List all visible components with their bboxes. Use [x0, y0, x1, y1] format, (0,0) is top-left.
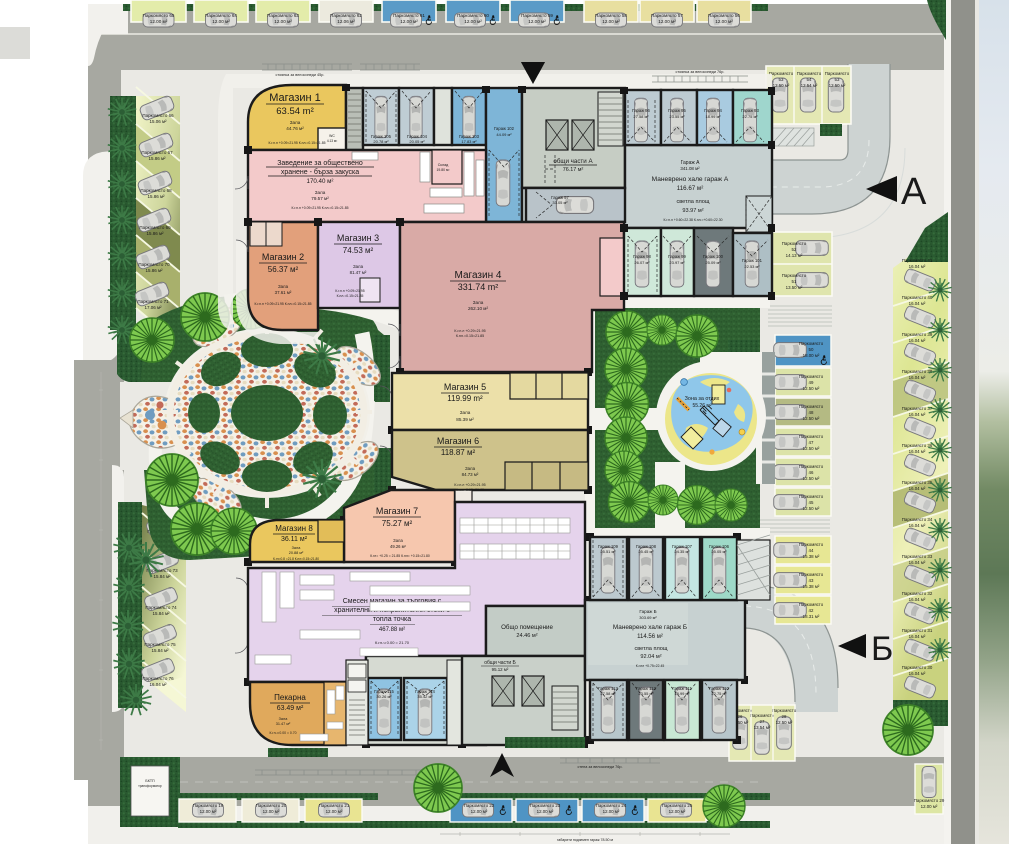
- svg-text:Зала: Зала: [278, 284, 289, 289]
- svg-text:14.13 м²: 14.13 м²: [786, 253, 803, 258]
- svg-text:Магазин 2: Магазин 2: [262, 252, 304, 262]
- svg-text:49.26 м²: 49.26 м²: [390, 544, 407, 549]
- svg-text:Паркомясто 20: Паркомясто 20: [256, 803, 287, 808]
- svg-text:Паркомясто: Паркомясто: [799, 434, 824, 439]
- svg-text:Гараж 100: Гараж 100: [703, 254, 724, 259]
- svg-text:23.55 м²: 23.55 м²: [669, 114, 685, 119]
- svg-text:50: 50: [809, 347, 814, 352]
- svg-text:15.86 м²: 15.86 м²: [148, 156, 166, 161]
- svg-text:54: 54: [807, 77, 812, 82]
- svg-text:Паркомясто 58: Паркомясто 58: [595, 13, 627, 18]
- svg-text:Магазин 7: Магазин 7: [376, 506, 418, 516]
- svg-text:Паркомясто 60: Паркомясто 60: [457, 13, 489, 18]
- svg-text:46: 46: [809, 470, 814, 475]
- svg-text:467.88 м²: 467.88 м²: [379, 627, 405, 633]
- svg-text:К.г.п.л +0.60=22.38 К.пл.=+0.: К.г.п.л +0.60=22.38 К.пл.=+0.60=22.30: [663, 218, 722, 222]
- svg-text:18.00 м²: 18.00 м²: [803, 353, 820, 358]
- svg-text:63.54 m²: 63.54 m²: [276, 106, 314, 117]
- svg-text:Паркомясто 36: Паркомясто 36: [902, 443, 933, 448]
- svg-text:К.гл=0.8 =21.8 К.пл=0.15=21.8: К.гл=0.8 =21.8 К.пл=0.15=21.80: [273, 557, 319, 561]
- svg-text:Паркомясто 35: Паркомясто 35: [902, 480, 933, 485]
- svg-text:12.00 м²: 12.00 м²: [602, 19, 620, 24]
- svg-text:Склад: Склад: [438, 163, 449, 167]
- svg-text:16.04 м²: 16.04 м²: [909, 671, 926, 676]
- svg-text:16.04 м²: 16.04 м²: [909, 523, 926, 528]
- svg-text:20.78 м²: 20.78 м²: [373, 139, 389, 144]
- svg-text:26.07 м²: 26.07 м²: [634, 260, 650, 265]
- svg-text:Паркомясто: Паркомясто: [782, 273, 807, 278]
- svg-text:12.00 м²: 12.00 м²: [326, 809, 343, 814]
- svg-text:17.83 м²: 17.83 м²: [461, 139, 477, 144]
- svg-text:15.84 м²: 15.84 м²: [151, 648, 169, 653]
- svg-text:Паркомясто 71: Паркомясто 71: [137, 299, 169, 304]
- svg-text:БКТП: БКТП: [145, 779, 155, 783]
- svg-text:12.00 м²: 12.00 м²: [528, 19, 546, 24]
- svg-text:12.00 м²: 12.00 м²: [464, 19, 482, 24]
- svg-text:Магазин 8: Магазин 8: [275, 524, 313, 533]
- svg-text:К.пл.=0.15=21.85: К.пл.=0.15=21.85: [337, 294, 364, 298]
- svg-text:Паркомясто 56: Паркомясто 56: [708, 13, 740, 18]
- svg-text:93.97 м²: 93.97 м²: [682, 208, 703, 214]
- svg-text:Гараж 101: Гараж 101: [742, 258, 763, 263]
- svg-text:Паркомясто 39: Паркомясто 39: [902, 332, 933, 337]
- svg-text:Маневрено хале гараж Б: Маневрено хале гараж Б: [613, 624, 687, 631]
- svg-text:22.75 м²: 22.75 м²: [711, 691, 727, 696]
- svg-text:Паркомясто: Паркомясто: [799, 341, 824, 346]
- svg-text:26: 26: [738, 714, 743, 719]
- svg-text:К.г.пл +0.75=22.45: К.г.пл +0.75=22.45: [636, 664, 665, 668]
- svg-text:49: 49: [809, 380, 814, 385]
- svg-text:12.50 м²: 12.50 м²: [803, 476, 820, 481]
- svg-text:К.г.п.н +0.09=21.95 К.пл.=0.1: К.г.п.н +0.09=21.95 К.пл.=0.15=21.85: [255, 302, 312, 306]
- svg-text:Паркомясто 75: Паркомясто 75: [144, 642, 176, 647]
- svg-text:48: 48: [809, 410, 814, 415]
- svg-text:Паркомясто 68: Паркомясто 68: [140, 188, 172, 193]
- svg-text:Зала: Зала: [290, 120, 301, 125]
- svg-text:топла точка: топла точка: [373, 616, 411, 623]
- svg-text:24.35 м²: 24.35 м²: [674, 549, 690, 554]
- svg-text:К.г.п.н +0.09=21.95: К.г.п.н +0.09=21.95: [335, 289, 364, 293]
- svg-text:Паркомясто 65: Паркомясто 65: [143, 13, 175, 18]
- svg-text:12.50 м²: 12.50 м²: [803, 416, 820, 421]
- svg-text:Зала: Зала: [393, 538, 403, 543]
- svg-text:К.г.п.л +0.29=21.95: К.г.п.л +0.29=21.95: [454, 329, 485, 333]
- svg-text:Паркомясто 66: Паркомясто 66: [142, 113, 174, 118]
- svg-text:Паркомясто 31: Паркомясто 31: [902, 628, 933, 633]
- svg-text:Паркомясто 64: Паркомясто 64: [205, 13, 237, 18]
- svg-text:Магазин 1: Магазин 1: [269, 92, 321, 104]
- svg-text:18.99 м²: 18.99 м²: [674, 691, 690, 696]
- svg-text:119.99 m²: 119.99 m²: [447, 394, 483, 403]
- svg-text:35.42 м²: 35.42 м²: [417, 694, 433, 699]
- svg-text:341.08 м²: 341.08 м²: [680, 166, 700, 171]
- svg-text:25.51 м²: 25.51 м²: [600, 549, 616, 554]
- svg-text:81.47 м²: 81.47 м²: [350, 270, 367, 275]
- svg-text:19.80 м²: 19.80 м²: [437, 168, 451, 172]
- svg-text:18.31 м²: 18.31 м²: [803, 614, 820, 619]
- svg-text:Зала: Зала: [473, 300, 484, 305]
- svg-text:15.86 м²: 15.86 м²: [146, 231, 164, 236]
- svg-text:303.69 м²: 303.69 м²: [639, 615, 657, 620]
- svg-text:12.00 м²: 12.00 м²: [212, 19, 230, 24]
- svg-text:Паркомясто 69: Паркомясто 69: [139, 225, 171, 230]
- svg-text:Гараж 93: Гараж 93: [741, 108, 759, 113]
- svg-text:53: 53: [779, 77, 784, 82]
- svg-text:габарити подземен гараж 78.50: габарити подземен гараж 78.50 м: [557, 838, 614, 842]
- svg-text:Паркомясто 76: Паркомясто 76: [142, 676, 174, 681]
- svg-text:16.04 м²: 16.04 м²: [909, 634, 926, 639]
- svg-text:27: 27: [760, 719, 765, 724]
- svg-text:12.00 м²: 12.00 м²: [921, 804, 938, 809]
- svg-text:13.50 м²: 13.50 м²: [786, 285, 803, 290]
- svg-text:Паркомясто: Паркомясто: [799, 602, 824, 607]
- svg-text:К.гл-ч 0.00 = 21.70: К.гл-ч 0.00 = 21.70: [375, 640, 410, 645]
- svg-text:Гараж Б: Гараж Б: [639, 609, 656, 614]
- svg-text:20.05 м²: 20.05 м²: [409, 139, 425, 144]
- svg-text:16.04 м²: 16.04 м²: [909, 412, 926, 417]
- svg-text:Гараж 98: Гараж 98: [633, 254, 651, 259]
- svg-text:95.12 м²: 95.12 м²: [492, 667, 509, 672]
- svg-text:45: 45: [809, 500, 814, 505]
- svg-text:Гараж 95: Гараж 95: [668, 108, 686, 113]
- svg-text:79.57 м²: 79.57 м²: [311, 196, 329, 201]
- svg-text:74.53 м²: 74.53 м²: [343, 246, 374, 255]
- svg-text:16.04 м²: 16.04 м²: [909, 560, 926, 565]
- svg-text:Магазин 6: Магазин 6: [437, 436, 479, 446]
- svg-text:51: 51: [792, 279, 797, 284]
- svg-text:22.53 м²: 22.53 м²: [744, 264, 760, 269]
- svg-text:К.гл-ч 0.00 = 0.70: К.гл-ч 0.00 = 0.70: [270, 731, 297, 735]
- svg-text:16.04 м²: 16.04 м²: [909, 338, 926, 343]
- svg-text:25.05 м²: 25.05 м²: [711, 549, 727, 554]
- svg-text:22.75 м²: 22.75 м²: [742, 114, 758, 119]
- svg-text:Зала: Зала: [279, 717, 289, 721]
- svg-text:Паркомясто: Паркомясто: [799, 542, 824, 547]
- svg-text:К.гл= +0.25 = 21.85 К.пл= +: К.гл= +0.25 = 21.85 К.пл= +0.15=21.80: [370, 554, 430, 558]
- svg-text:Б: Б: [871, 630, 893, 668]
- svg-text:Паркомясто 40: Паркомясто 40: [902, 295, 933, 300]
- svg-text:44: 44: [809, 548, 814, 553]
- svg-text:114.56 м²: 114.56 м²: [637, 634, 663, 640]
- svg-text:Гараж 102: Гараж 102: [494, 126, 515, 131]
- svg-text:15.38 м²: 15.38 м²: [803, 554, 820, 559]
- svg-text:44.09 м²: 44.09 м²: [496, 132, 512, 137]
- svg-text:Паркомясто 73: Паркомясто 73: [146, 568, 178, 573]
- svg-text:Паркомясто: Паркомясто: [799, 404, 824, 409]
- svg-text:Паркомясто: Паркомясто: [782, 241, 807, 246]
- svg-text:Зала: Зала: [353, 264, 364, 269]
- svg-text:118.87 м²: 118.87 м²: [441, 448, 476, 457]
- svg-text:Общо помещение: Общо помещение: [501, 624, 553, 631]
- svg-text:Паркомясто: Паркомясто: [797, 71, 822, 76]
- svg-text:светла площ: светла площ: [634, 646, 667, 652]
- svg-text:43: 43: [809, 578, 814, 583]
- svg-text:Паркомясто 19: Паркомясто 19: [193, 803, 224, 808]
- svg-text:К.г.п.н +0.09=21.95 К.пл.=0.1: К.г.п.н +0.09=21.95 К.пл.=0.15=21.85: [269, 141, 326, 145]
- svg-text:светла площ: светла площ: [676, 199, 709, 205]
- svg-text:Паркомясто 62: Паркомясто 62: [330, 13, 362, 18]
- svg-text:хранене - бърза закуска: хранене - бърза закуска: [281, 168, 359, 176]
- svg-text:стена за велосипеди 76р.: стена за велосипеди 76р.: [577, 765, 622, 769]
- svg-text:75.27 м²: 75.27 м²: [382, 519, 413, 528]
- svg-text:Зона за отдих: Зона за отдих: [685, 396, 720, 402]
- svg-text:Паркомясто: Паркомясто: [799, 464, 824, 469]
- svg-text:55.26 м²: 55.26 м²: [692, 403, 711, 409]
- svg-text:Паркомясто 21: Паркомясто 21: [319, 803, 350, 808]
- svg-text:44.76 м²: 44.76 м²: [286, 126, 304, 131]
- svg-text:15.38 м²: 15.38 м²: [803, 584, 820, 589]
- svg-text:15.84 м²: 15.84 м²: [153, 574, 171, 579]
- svg-text:84.73 м²: 84.73 м²: [462, 472, 479, 477]
- svg-text:Паркомясто 23: Паркомясто 23: [530, 803, 561, 808]
- svg-text:Паркомясто 59: Паркомясто 59: [521, 13, 553, 18]
- svg-text:16.04 м²: 16.04 м²: [909, 301, 926, 306]
- svg-text:Зала: Зала: [315, 190, 326, 195]
- svg-text:стоянка за велосипеди 76р.: стоянка за велосипеди 76р.: [676, 70, 725, 74]
- svg-text:30.26 м²: 30.26 м²: [376, 694, 392, 699]
- svg-text:16.04 м²: 16.04 м²: [909, 449, 926, 454]
- svg-text:116.67 м²: 116.67 м²: [677, 185, 704, 192]
- svg-text:Зала: Зала: [460, 410, 471, 415]
- svg-text:стоянка за велосипеди 45р.: стоянка за велосипеди 45р.: [276, 73, 325, 77]
- svg-text:Паркомясто 33: Паркомясто 33: [902, 554, 933, 559]
- svg-text:Паркомясто: Паркомясто: [825, 71, 850, 76]
- svg-text:12.00 м²: 12.00 м²: [150, 19, 168, 24]
- svg-text:Паркомясто: Паркомясто: [799, 572, 824, 577]
- svg-text:36.11 м²: 36.11 м²: [281, 536, 308, 543]
- svg-text:262.10 м²: 262.10 м²: [468, 306, 488, 311]
- svg-text:63.49 м²: 63.49 м²: [277, 705, 304, 712]
- svg-text:Паркомясто 70: Паркомясто 70: [138, 262, 170, 267]
- svg-text:85.39 м²: 85.39 м²: [456, 417, 474, 422]
- svg-text:42: 42: [809, 608, 814, 613]
- svg-text:12.50 м²: 12.50 м²: [803, 386, 820, 391]
- svg-text:Паркомясто 38: Паркомясто 38: [902, 369, 933, 374]
- svg-text:12.50 м²: 12.50 м²: [803, 446, 820, 451]
- svg-text:Паркомясто 24: Паркомясто 24: [596, 803, 627, 808]
- svg-text:Паркомясто 22: Паркомясто 22: [464, 803, 495, 808]
- svg-text:24.46 м²: 24.46 м²: [516, 633, 537, 639]
- svg-text:К.пл.=0.15=21.85: К.пл.=0.15=21.85: [456, 334, 484, 338]
- svg-text:Паркомясто 63: Паркомясто 63: [267, 13, 299, 18]
- svg-text:Заведение за обществено: Заведение за обществено: [277, 159, 363, 167]
- svg-text:92.04 м²: 92.04 м²: [640, 654, 661, 660]
- svg-text:31.47 м²: 31.47 м²: [276, 722, 291, 726]
- svg-text:16.04 м²: 16.04 м²: [909, 375, 926, 380]
- svg-text:25.09 м²: 25.09 м²: [705, 260, 721, 265]
- svg-text:23.97 м²: 23.97 м²: [669, 260, 685, 265]
- svg-text:15.84 м²: 15.84 м²: [152, 611, 170, 616]
- svg-text:331.74 m²: 331.74 m²: [458, 282, 499, 292]
- svg-text:Паркомясто 74: Паркомясто 74: [145, 605, 177, 610]
- svg-text:15.86 м²: 15.86 м²: [147, 194, 165, 199]
- svg-text:Паркомясто 37: Паркомясто 37: [902, 406, 933, 411]
- svg-text:Паркомясто 57: Паркомясто 57: [651, 13, 683, 18]
- svg-text:Зала: Зала: [465, 466, 476, 471]
- svg-text:76.17 м²: 76.17 м²: [563, 167, 584, 173]
- svg-text:трансформатор: трансформатор: [138, 784, 162, 788]
- svg-text:Паркомясто: Паркомясто: [799, 374, 824, 379]
- svg-text:Магазин 3: Магазин 3: [337, 233, 379, 243]
- svg-text:К.г.п.л +0.29=21.95: К.г.п.л +0.29=21.95: [454, 483, 485, 487]
- svg-text:Гараж 94: Гараж 94: [704, 108, 722, 113]
- svg-text:17.06 м²: 17.06 м²: [144, 305, 162, 310]
- svg-text:Паркомясто 67: Паркомясто 67: [141, 150, 173, 155]
- svg-text:12.00 м²: 12.00 м²: [669, 809, 686, 814]
- svg-text:12.50 м²: 12.50 м²: [803, 506, 820, 511]
- svg-text:Маневрено хале гараж А: Маневрено хале гараж А: [652, 176, 729, 183]
- svg-text:Паркомясто: Паркомясто: [772, 708, 797, 713]
- svg-text:33.05 м²: 33.05 м²: [552, 200, 568, 205]
- svg-text:12.00 м²: 12.00 м²: [400, 19, 418, 24]
- svg-text:47: 47: [809, 440, 814, 445]
- svg-text:Паркомясто: Паркомясто: [769, 71, 794, 76]
- svg-text:53: 53: [835, 77, 840, 82]
- svg-text:12.00 м²: 12.00 м²: [603, 809, 620, 814]
- svg-text:15.06 м²: 15.06 м²: [149, 119, 167, 124]
- svg-text:20.88 м²: 20.88 м²: [289, 551, 304, 555]
- svg-text:Паркомясто 32: Паркомясто 32: [902, 591, 933, 596]
- svg-text:13.54 м²: 13.54 м²: [754, 725, 771, 730]
- svg-text:Паркомясто 61: Паркомясто 61: [393, 13, 425, 18]
- svg-text:56.37 м²: 56.37 м²: [268, 265, 299, 274]
- svg-text:28: 28: [782, 714, 787, 719]
- svg-text:12.00 м²: 12.00 м²: [263, 809, 280, 814]
- svg-text:25.45 м²: 25.45 м²: [638, 549, 654, 554]
- svg-text:16.04 м²: 16.04 м²: [149, 682, 167, 687]
- svg-text:16.04 м²: 16.04 м²: [909, 486, 926, 491]
- svg-text:18.99 м²: 18.99 м²: [705, 114, 721, 119]
- svg-text:16.04 м²: 16.04 м²: [909, 264, 926, 269]
- svg-text:12.00 м²: 12.00 м²: [471, 809, 488, 814]
- svg-text:Паркомясто: Паркомясто: [750, 713, 775, 718]
- svg-text:Паркомясто 41: Паркомясто 41: [902, 258, 933, 263]
- svg-text:37.61 м²: 37.61 м²: [275, 290, 292, 295]
- svg-text:Гараж 96: Гараж 96: [632, 108, 650, 113]
- svg-text:12.00 м²: 12.00 м²: [274, 19, 292, 24]
- svg-text:К.пл.=0.15=21.85: К.пл.=0.15=21.85: [456, 488, 484, 492]
- svg-text:12.50 м²: 12.50 м²: [773, 83, 790, 88]
- svg-text:Паркомясто: Паркомясто: [799, 494, 824, 499]
- svg-text:12.50 м²: 12.50 м²: [776, 720, 793, 725]
- svg-text:12.54 м²: 12.54 м²: [801, 83, 818, 88]
- svg-text:12.00 м²: 12.00 м²: [200, 809, 217, 814]
- svg-text:Магазин 5: Магазин 5: [444, 382, 486, 392]
- svg-text:170.40 м²: 170.40 м²: [307, 178, 334, 185]
- svg-text:52: 52: [792, 247, 797, 252]
- svg-text:Паркомясто 30: Паркомясто 30: [902, 665, 933, 670]
- svg-text:12.50 м²: 12.50 м²: [829, 83, 846, 88]
- svg-text:12.00 м²: 12.00 м²: [715, 19, 733, 24]
- svg-text:12.00 м²: 12.00 м²: [658, 19, 676, 24]
- svg-text:23.55 м²: 23.55 м²: [638, 691, 654, 696]
- svg-text:Магазин 4: Магазин 4: [455, 270, 502, 281]
- svg-text:Гараж 99: Гараж 99: [668, 254, 686, 259]
- svg-text:27.58 м²: 27.58 м²: [600, 691, 616, 696]
- svg-text:Паркомясто 25: Паркомясто 25: [662, 803, 693, 808]
- svg-text:общи части А: общи части А: [553, 158, 593, 165]
- svg-text:общи части Б: общи части Б: [484, 660, 516, 666]
- svg-text:4.13 м²: 4.13 м²: [327, 139, 337, 143]
- svg-text:16.04 м²: 16.04 м²: [909, 597, 926, 602]
- svg-text:Пекарна: Пекарна: [274, 693, 306, 702]
- svg-text:12.00 м²: 12.00 м²: [537, 809, 554, 814]
- svg-text:27.58 м²: 27.58 м²: [633, 114, 649, 119]
- svg-text:Паркомясто 34: Паркомясто 34: [902, 517, 933, 522]
- svg-text:К.г.п.н +0.09=21.95 К.пл.=0.1: К.г.п.н +0.09=21.95 К.пл.=0.15=21.85: [292, 206, 349, 210]
- svg-text:Зала: Зала: [292, 546, 302, 550]
- svg-text:15.86 м²: 15.86 м²: [145, 268, 163, 273]
- svg-text:Паркомясто 29: Паркомясто 29: [914, 798, 945, 803]
- svg-text:WC: WC: [329, 134, 335, 138]
- svg-text:12.06 м²: 12.06 м²: [337, 19, 355, 24]
- svg-text:А: А: [901, 171, 927, 213]
